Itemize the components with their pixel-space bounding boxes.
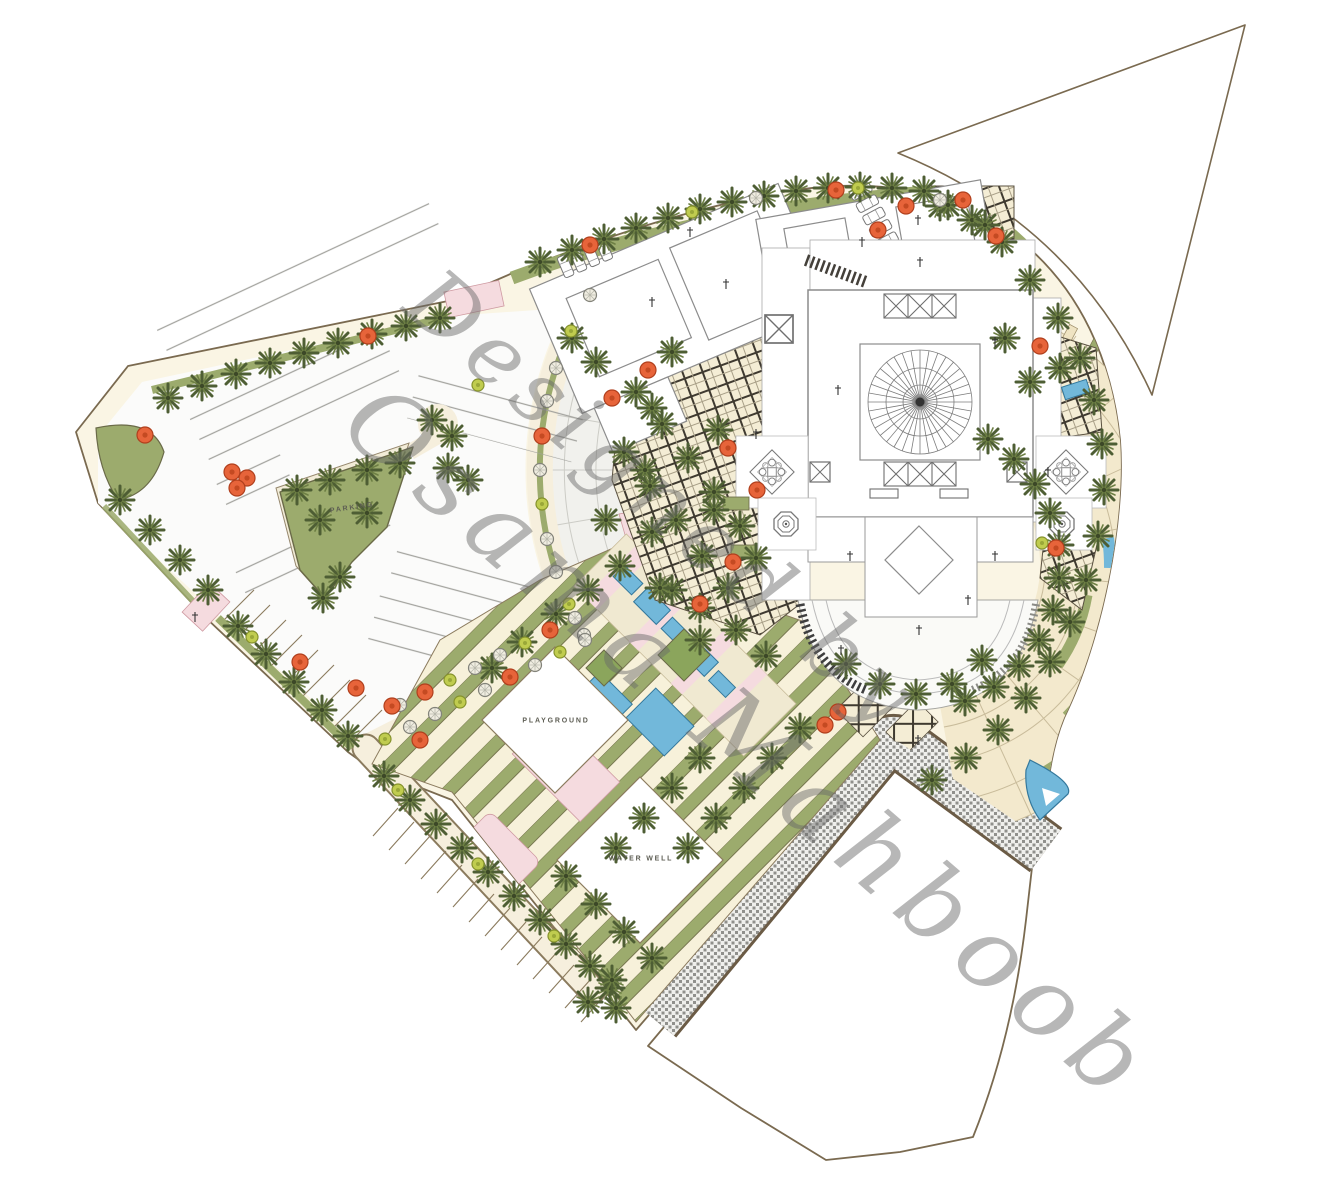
minaret	[774, 512, 798, 536]
site-plan-canvas: PARKING PLAYGROUND WATER WELL Designed b…	[0, 0, 1332, 1200]
site-plan-drawing	[0, 0, 1332, 1200]
playground-label: PLAYGROUND	[522, 718, 589, 725]
water-well-label: WATER WELL	[609, 856, 674, 863]
